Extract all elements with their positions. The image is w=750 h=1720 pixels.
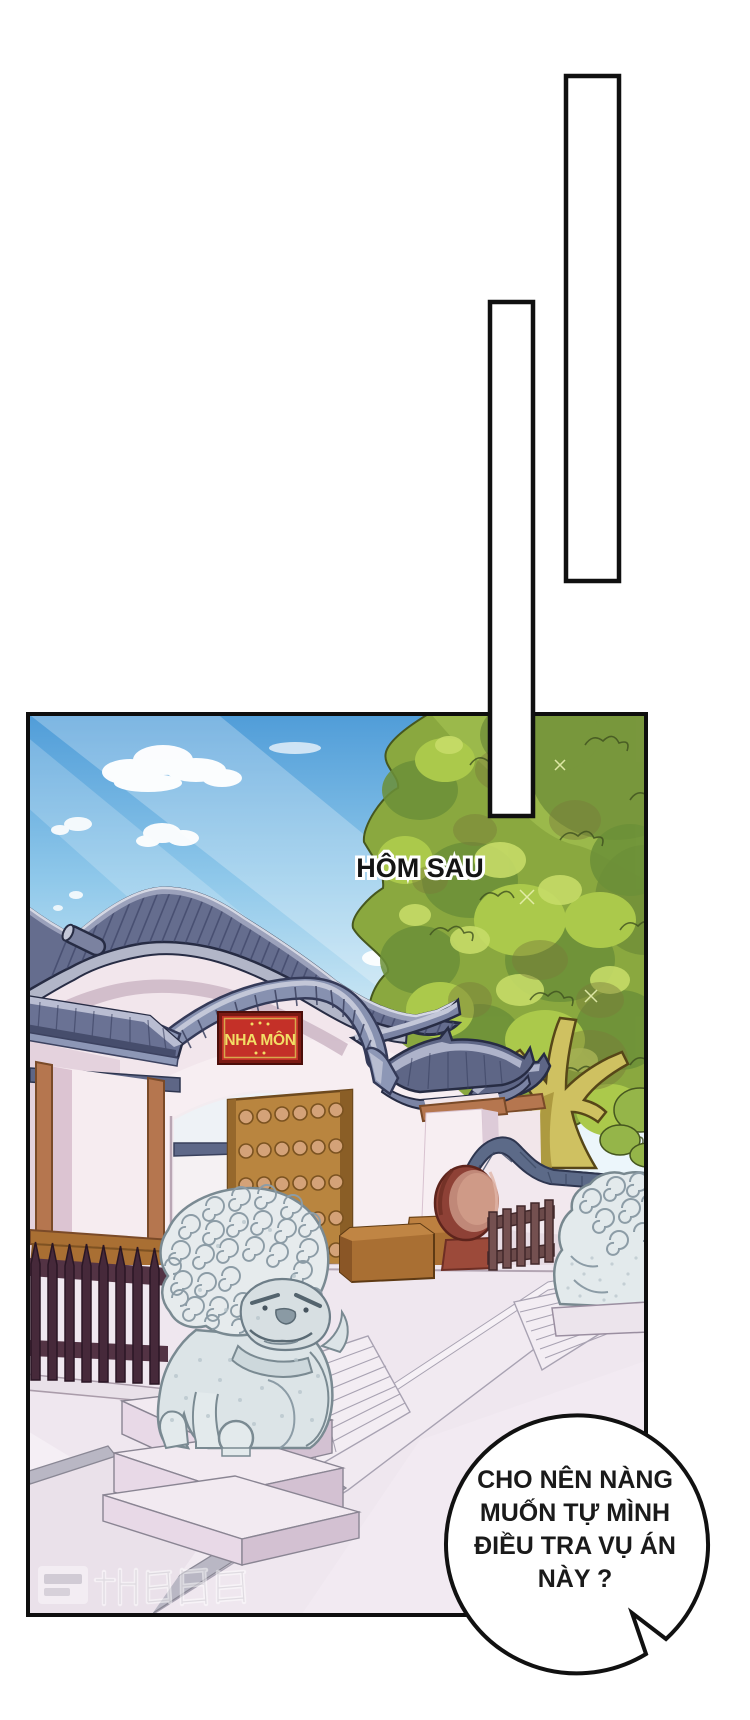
svg-text:CHO NÊN NÀNG: CHO NÊN NÀNG [477,1464,673,1494]
svg-text:ĐIỀU TRA VỤ ÁN: ĐIỀU TRA VỤ ÁN [474,1531,676,1560]
svg-text:MUỐN TỰ MÌNH: MUỐN TỰ MÌNH [480,1497,670,1527]
svg-text:HÔM SAU: HÔM SAU [356,852,484,883]
svg-text:NHA MÔN: NHA MÔN [224,1031,295,1049]
svg-text:NÀY ?: NÀY ? [538,1564,613,1593]
